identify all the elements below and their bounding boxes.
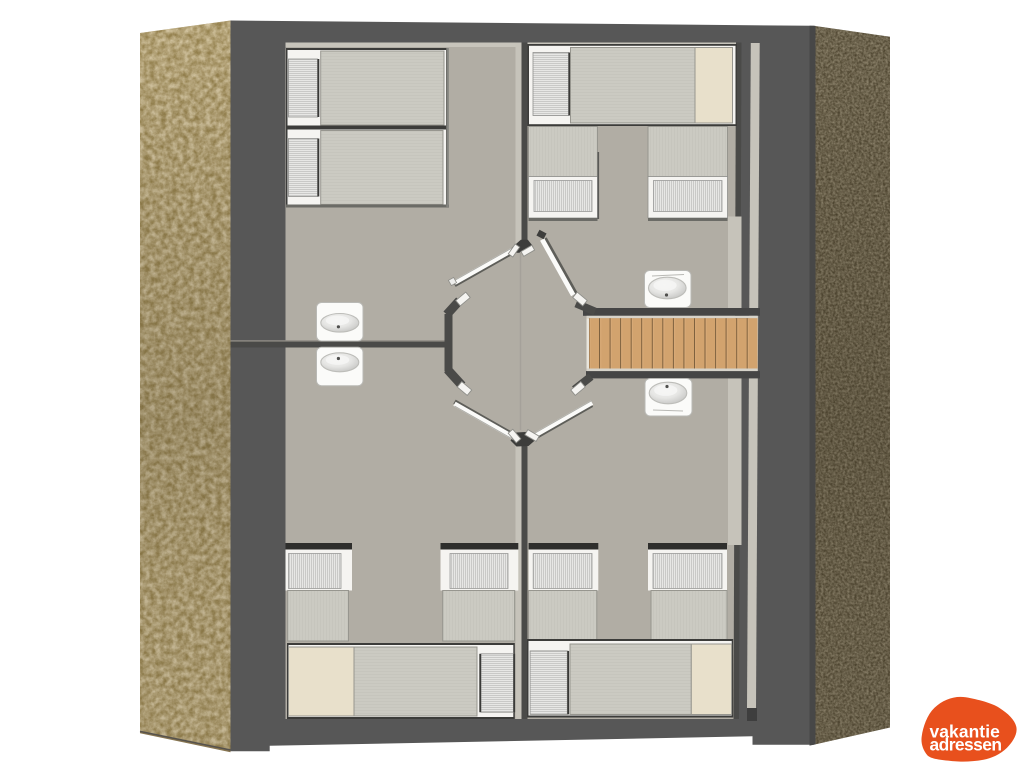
svg-text:adressen: adressen [930,735,1002,755]
